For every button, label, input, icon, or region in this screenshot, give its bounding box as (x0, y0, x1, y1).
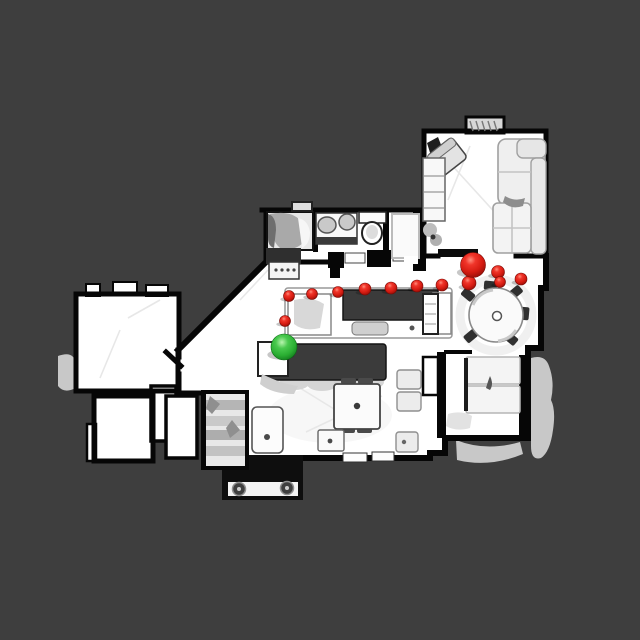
bath-shelf (292, 202, 312, 211)
bottom-left-bedroom-floor (94, 396, 153, 461)
shower (392, 214, 419, 264)
coffee-table (252, 407, 283, 453)
bookshelf (423, 158, 445, 221)
sink-counter (316, 213, 357, 244)
hall-strip-2 (166, 396, 197, 458)
side-chairs (396, 370, 421, 452)
map-canvas[interactable] (0, 0, 640, 640)
sectional-sofa (493, 139, 546, 254)
left-bedroom-floor (76, 294, 179, 391)
fireplace-box (318, 430, 344, 451)
stove (266, 248, 301, 279)
viewer-viewport[interactable] (0, 0, 640, 640)
sofa-left (201, 390, 249, 470)
dining-table (334, 378, 380, 433)
radiator-right-wing (423, 294, 438, 334)
